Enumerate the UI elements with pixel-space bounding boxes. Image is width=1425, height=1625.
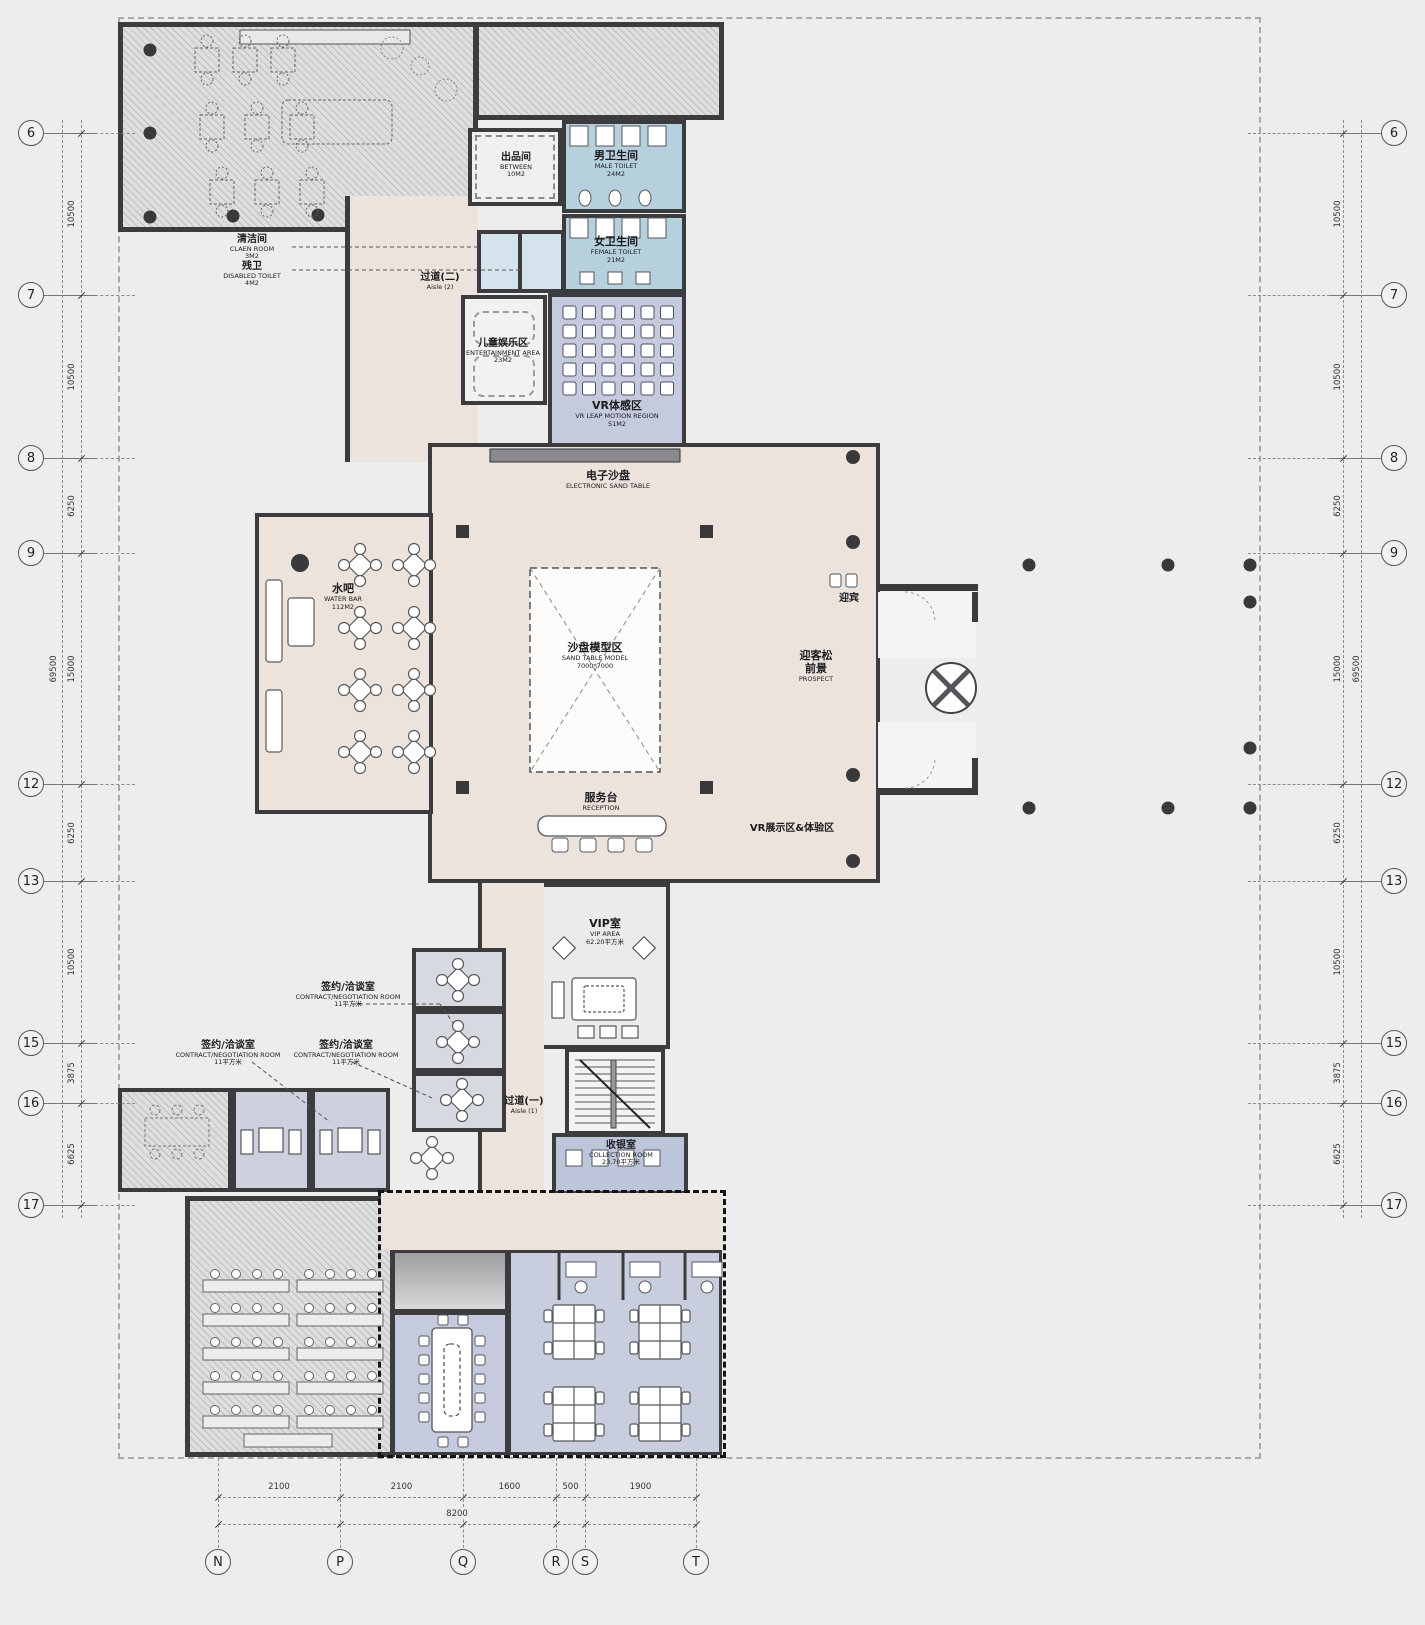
grid-leader-dash bbox=[218, 1458, 219, 1548]
grid-leader bbox=[1330, 1043, 1381, 1044]
dimension-label: 500 bbox=[559, 1482, 581, 1492]
grid-leader-dash bbox=[1248, 1043, 1330, 1044]
dimension-label: 15000 bbox=[67, 655, 77, 682]
grid-leader-dash bbox=[95, 1043, 135, 1044]
grid-leader-dash bbox=[1248, 133, 1330, 134]
grid-marker-12-left: 12 bbox=[18, 771, 44, 797]
label-greeting: 迎宾 bbox=[839, 593, 859, 605]
grid-marker-7-left: 7 bbox=[18, 282, 44, 308]
grid-marker-15-left: 15 bbox=[18, 1030, 44, 1056]
grid-marker-9-right: 9 bbox=[1381, 540, 1407, 566]
label-water-bar: 水吧 WATER BAR 112M2 bbox=[324, 583, 362, 611]
grid-leader bbox=[44, 1043, 95, 1044]
dimension-label: 10500 bbox=[1333, 948, 1343, 975]
label-contract-2: 签约/洽谈室 CONTRACT/NEGOTIATION ROOM 11平方米 bbox=[175, 1040, 280, 1067]
grid-leader bbox=[1330, 553, 1381, 554]
grid-leader bbox=[1330, 1205, 1381, 1206]
grid-leader-dash bbox=[1248, 458, 1330, 459]
grid-marker-13-left: 13 bbox=[18, 868, 44, 894]
dimension-total: 8200 bbox=[443, 1509, 471, 1519]
grid-leader bbox=[1330, 1103, 1381, 1104]
floor-plan-canvas: 出品间 BETWEEN 10M2 男卫生间 MALE TOILET 24M2 女… bbox=[0, 0, 1425, 1625]
label-aisle2: 过道(二) Aisle (2) bbox=[420, 272, 459, 291]
grid-marker-9-left: 9 bbox=[18, 540, 44, 566]
grid-leader-dash bbox=[95, 881, 135, 882]
grid-marker-S: S bbox=[572, 1549, 598, 1575]
dining-fixtures bbox=[240, 30, 457, 144]
entrance-right bbox=[878, 584, 978, 795]
meeting-room-table bbox=[145, 1105, 209, 1159]
grid-leader bbox=[44, 458, 95, 459]
dimension-label: 2100 bbox=[265, 1482, 293, 1492]
label-collection: 收银室 COLLECTION ROOM 23.70平方米 bbox=[589, 1140, 653, 1167]
revolving-door-icon bbox=[926, 663, 976, 713]
label-prospect: 迎客松 前景 PROSPECT bbox=[799, 650, 833, 684]
label-electronic-sand-table: 电子沙盘 ELECTRONIC SAND TABLE bbox=[566, 470, 650, 491]
grid-marker-17-right: 17 bbox=[1381, 1192, 1407, 1218]
grid-marker-15-right: 15 bbox=[1381, 1030, 1407, 1056]
dimension-label: 10500 bbox=[67, 200, 77, 227]
grid-marker-16-right: 16 bbox=[1381, 1090, 1407, 1116]
grid-leader-dash bbox=[556, 1458, 557, 1548]
label-female-toilet: 女卫生间 FEMALE TOILET 21M2 bbox=[591, 236, 641, 264]
dimension-line bbox=[218, 1497, 696, 1498]
label-vr-motion: VR体感区 VR LEAP MOTION REGION 51M2 bbox=[575, 400, 658, 428]
grid-marker-8-right: 8 bbox=[1381, 445, 1407, 471]
label-disabled-toilet: 残卫 DISABLED TOILET 4M2 bbox=[223, 261, 281, 288]
grid-leader bbox=[1330, 133, 1381, 134]
dimension-label: 6250 bbox=[67, 822, 77, 844]
dimension-total: 69500 bbox=[1352, 655, 1362, 682]
grid-leader-dash bbox=[95, 784, 135, 785]
grid-marker-8-left: 8 bbox=[18, 445, 44, 471]
grid-leader bbox=[44, 1103, 95, 1104]
grid-marker-Q: Q bbox=[450, 1549, 476, 1575]
dimension-label: 6625 bbox=[1333, 1143, 1343, 1165]
dimension-label: 1600 bbox=[496, 1482, 524, 1492]
vip-furniture bbox=[552, 937, 655, 1038]
dimension-label: 10500 bbox=[67, 948, 77, 975]
grid-leader-dash bbox=[340, 1458, 341, 1548]
grid-leader bbox=[1330, 458, 1381, 459]
dimension-label: 6250 bbox=[1333, 495, 1343, 517]
grid-marker-7-right: 7 bbox=[1381, 282, 1407, 308]
grid-marker-6-right: 6 bbox=[1381, 120, 1407, 146]
label-male-toilet: 男卫生间 MALE TOILET 24M2 bbox=[594, 150, 638, 178]
grid-marker-16-left: 16 bbox=[18, 1090, 44, 1116]
grid-leader bbox=[44, 133, 95, 134]
grid-leader-dash bbox=[1248, 553, 1330, 554]
grid-leader-dash bbox=[95, 133, 135, 134]
grid-marker-12-right: 12 bbox=[1381, 771, 1407, 797]
grid-leader bbox=[44, 1205, 95, 1206]
grid-marker-13-right: 13 bbox=[1381, 868, 1407, 894]
grid-marker-N: N bbox=[205, 1549, 231, 1575]
grid-leader-dash bbox=[696, 1458, 697, 1548]
dimension-rail bbox=[1343, 120, 1344, 1218]
conference-table bbox=[432, 1328, 472, 1432]
label-reception: 服务台 RECEPTION bbox=[582, 792, 619, 813]
sofa-room-furniture bbox=[241, 1128, 380, 1154]
label-contract-3: 签约/洽谈室 CONTRACT/NEGOTIATION ROOM 11平方米 bbox=[293, 1040, 398, 1067]
grid-leader-dash bbox=[95, 458, 135, 459]
label-aisle1: 过道(一) Aisle (1) bbox=[504, 1096, 543, 1115]
grid-leader bbox=[44, 881, 95, 882]
grid-leader bbox=[44, 553, 95, 554]
dimension-total-line bbox=[218, 1524, 696, 1525]
dimension-label: 10500 bbox=[67, 363, 77, 390]
grid-marker-6-left: 6 bbox=[18, 120, 44, 146]
grid-leader bbox=[1330, 784, 1381, 785]
label-clean-room: 清洁间 CLAEN ROOM 3M2 bbox=[230, 234, 274, 261]
dimension-label: 10500 bbox=[1333, 200, 1343, 227]
furniture-layer bbox=[0, 0, 1425, 1625]
dimension-rail bbox=[62, 120, 63, 1218]
grid-marker-R: R bbox=[543, 1549, 569, 1575]
grid-leader-dash bbox=[95, 1205, 135, 1206]
label-sand-model: 沙盘模型区 SAND TABLE MODEL 7000*7000 bbox=[562, 642, 628, 670]
grid-leader-dash bbox=[1248, 1103, 1330, 1104]
label-between: 出品间 BETWEEN 10M2 bbox=[500, 152, 532, 179]
grid-leader-dash bbox=[1248, 881, 1330, 882]
dimension-label: 10500 bbox=[1333, 363, 1343, 390]
lecture-podium bbox=[244, 1434, 332, 1447]
grid-leader bbox=[1330, 295, 1381, 296]
reception-desk bbox=[538, 816, 666, 836]
dimension-rail bbox=[81, 120, 82, 1218]
grid-leader bbox=[44, 784, 95, 785]
grid-leader bbox=[44, 295, 95, 296]
dimension-label: 6625 bbox=[67, 1143, 77, 1165]
label-vip: VIP室 VIP AREA 62.20平方米 bbox=[586, 918, 624, 946]
electronic-sand-table-counter bbox=[490, 449, 680, 462]
dimension-label: 6250 bbox=[67, 495, 77, 517]
water-bar-lounge bbox=[266, 554, 314, 752]
grid-leader bbox=[1330, 881, 1381, 882]
dimension-label: 2100 bbox=[388, 1482, 416, 1492]
grid-leader-dash bbox=[1248, 295, 1330, 296]
grid-marker-P: P bbox=[327, 1549, 353, 1575]
grid-leader-dash bbox=[463, 1458, 464, 1548]
grid-leader-dash bbox=[95, 295, 135, 296]
grid-leader-dash bbox=[1248, 1205, 1330, 1206]
dimension-label: 3875 bbox=[67, 1062, 77, 1084]
generated-furniture bbox=[144, 35, 1257, 1447]
grid-leader-dash bbox=[95, 553, 135, 554]
label-kids: 儿童娱乐区 ENTERTAINMENT AREA 23M2 bbox=[466, 338, 540, 365]
grid-leader-dash bbox=[95, 1103, 135, 1104]
dimension-label: 6250 bbox=[1333, 822, 1343, 844]
grid-marker-17-left: 17 bbox=[18, 1192, 44, 1218]
dimension-label: 15000 bbox=[1333, 655, 1343, 682]
grid-leader-dash bbox=[585, 1458, 586, 1548]
dimension-total: 69500 bbox=[49, 655, 59, 682]
label-contract-1: 签约/洽谈室 CONTRACT/NEGOTIATION ROOM 11平方米 bbox=[295, 982, 400, 1009]
dimension-label: 1900 bbox=[627, 1482, 655, 1492]
greeting-chairs bbox=[830, 574, 857, 587]
dimension-label: 3875 bbox=[1333, 1062, 1343, 1084]
label-vr-show: VR展示区&体验区 bbox=[750, 823, 834, 835]
grid-marker-T: T bbox=[683, 1549, 709, 1575]
grid-leader-dash bbox=[1248, 784, 1330, 785]
